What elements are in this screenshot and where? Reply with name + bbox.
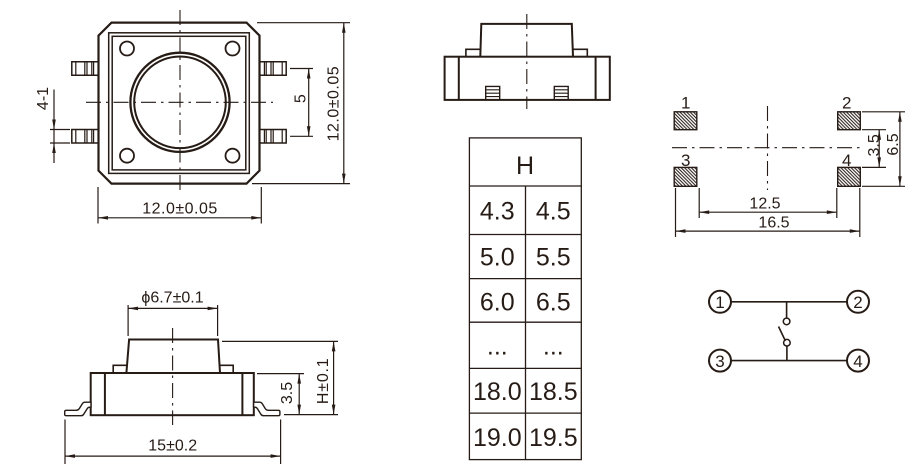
svg-text:...: ... (543, 333, 564, 361)
svg-text:4.3: 4.3 (480, 197, 515, 225)
svg-text:2: 2 (842, 94, 851, 113)
svg-text:2: 2 (853, 293, 862, 312)
svg-text:1: 1 (681, 94, 690, 113)
svg-text:18.5: 18.5 (529, 378, 578, 406)
svg-text:ϕ6.7±0.1: ϕ6.7±0.1 (141, 290, 203, 307)
svg-text:18.0: 18.0 (473, 378, 522, 406)
svg-text:...: ... (487, 333, 508, 361)
svg-text:H±0.1: H±0.1 (315, 358, 332, 405)
svg-text:6.5: 6.5 (885, 133, 902, 155)
svg-text:4-1: 4-1 (35, 87, 52, 110)
svg-text:12.5: 12.5 (749, 196, 780, 213)
svg-text:4: 4 (842, 151, 851, 170)
svg-text:15±0.2: 15±0.2 (148, 438, 197, 455)
svg-text:5: 5 (292, 94, 309, 103)
svg-text:5.0: 5.0 (480, 244, 515, 272)
svg-text:3: 3 (715, 352, 724, 371)
svg-text:12.0±0.05: 12.0±0.05 (325, 66, 342, 142)
svg-text:19.0: 19.0 (473, 424, 522, 452)
svg-text:4: 4 (853, 352, 862, 371)
svg-text:16.5: 16.5 (758, 214, 789, 231)
svg-text:3.5: 3.5 (866, 134, 883, 156)
svg-text:3: 3 (681, 151, 690, 170)
svg-text:H: H (516, 152, 534, 180)
svg-text:19.5: 19.5 (529, 424, 578, 452)
svg-text:1: 1 (715, 293, 724, 312)
svg-text:6.5: 6.5 (536, 289, 571, 317)
svg-text:12.0±0.05: 12.0±0.05 (142, 201, 218, 218)
svg-text:6.0: 6.0 (480, 289, 515, 317)
svg-text:4.5: 4.5 (536, 197, 571, 225)
svg-text:3.5: 3.5 (279, 382, 296, 404)
svg-text:5.5: 5.5 (536, 244, 571, 272)
